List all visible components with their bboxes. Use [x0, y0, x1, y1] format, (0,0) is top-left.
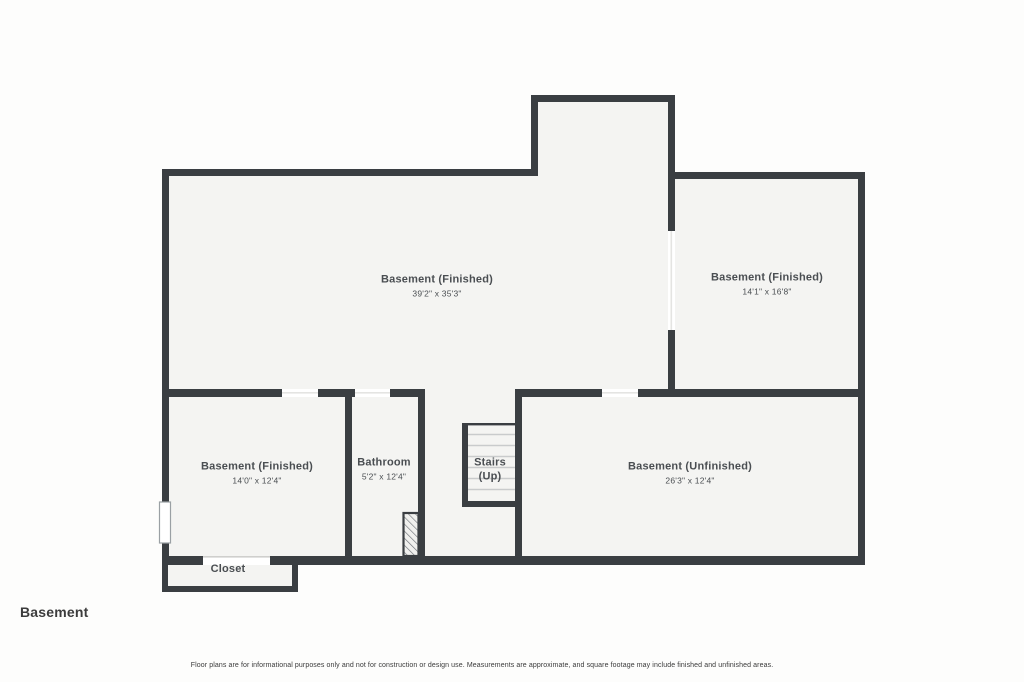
room-label-basement-finished-lower: Basement (Finished) 14'0" x 12'4" — [201, 460, 313, 485]
room-dimensions: 5'2" x 12'4" — [357, 471, 411, 482]
floor-plan-page: Basement (Finished) 39'2" x 35'3" Baseme… — [0, 0, 1024, 682]
room-label-basement-unfinished: Basement (Unfinished) 26'3" x 12'4" — [628, 460, 752, 485]
room-dimensions: 14'0" x 12'4" — [201, 475, 313, 486]
stairs-direction: (Up) — [474, 470, 506, 484]
room-name: Bathroom — [357, 456, 411, 470]
window-symbol — [160, 502, 171, 543]
room-name: Basement (Finished) — [711, 271, 823, 285]
room-name: Closet — [211, 563, 246, 577]
room-dimensions: 39'2" x 35'3" — [381, 288, 493, 299]
disclaimer-text: Floor plans are for informational purpos… — [0, 662, 964, 669]
room-label-basement-finished-right: Basement (Finished) 14'1" x 16'8" — [711, 271, 823, 296]
room-dimensions: 14'1" x 16'8" — [711, 286, 823, 297]
room-name: Basement (Unfinished) — [628, 460, 752, 474]
room-label-bathroom: Bathroom 5'2" x 12'4" — [357, 456, 411, 481]
room-label-basement-finished-main: Basement (Finished) 39'2" x 35'3" — [381, 273, 493, 298]
room-label-closet: Closet — [211, 563, 246, 577]
room-dimensions: 26'3" x 12'4" — [628, 475, 752, 486]
room-name: Basement (Finished) — [381, 273, 493, 287]
room-name: Stairs — [474, 456, 506, 470]
floor-title: Basement — [20, 604, 89, 620]
room-label-stairs: Stairs (Up) — [474, 456, 506, 484]
room-name: Basement (Finished) — [201, 460, 313, 474]
floor-plan-drawing — [0, 0, 1024, 682]
chimney-hatch — [404, 513, 419, 556]
